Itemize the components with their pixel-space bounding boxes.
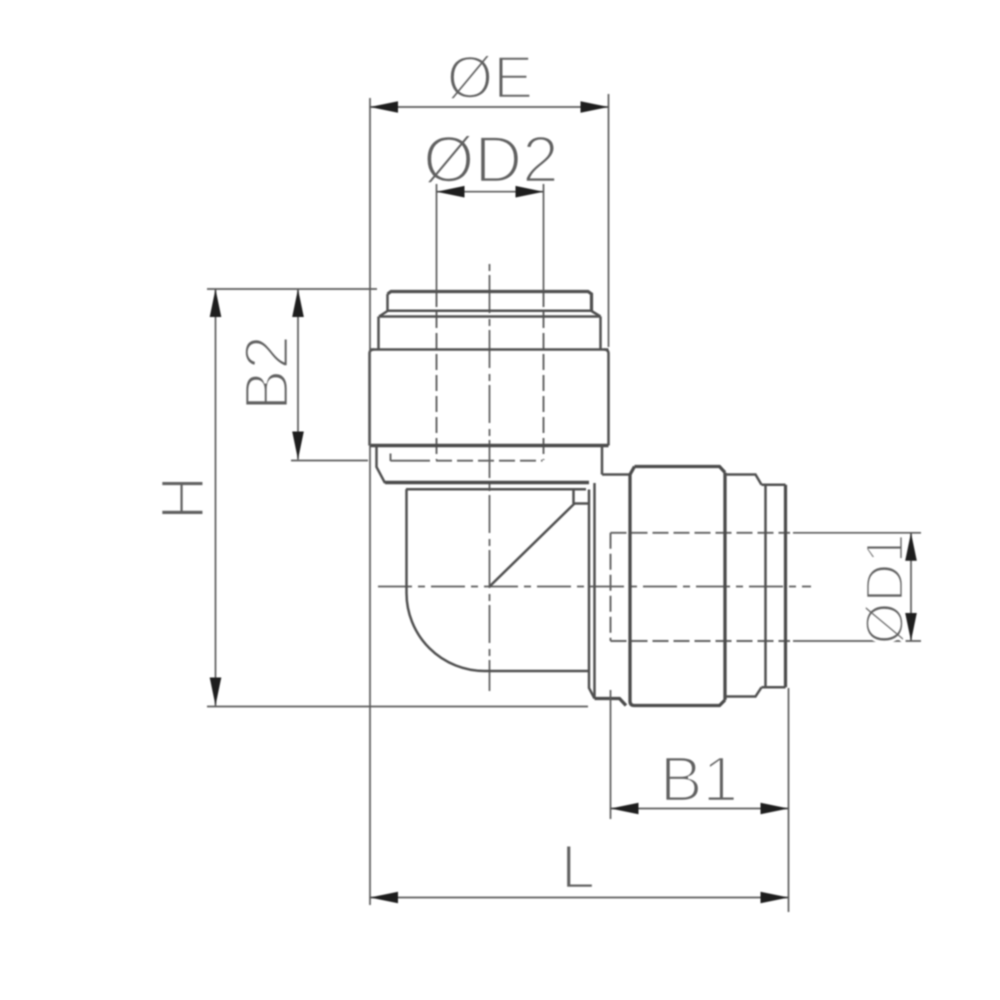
svg-text:B2: B2 [233,335,302,411]
svg-text:L: L [561,833,595,902]
svg-text:ØE: ØE [447,44,534,111]
svg-text:B1: B1 [660,743,738,815]
svg-text:ØD1: ØD1 [855,533,915,644]
svg-text:ØD2: ØD2 [423,122,559,196]
svg-text:H: H [149,476,218,521]
